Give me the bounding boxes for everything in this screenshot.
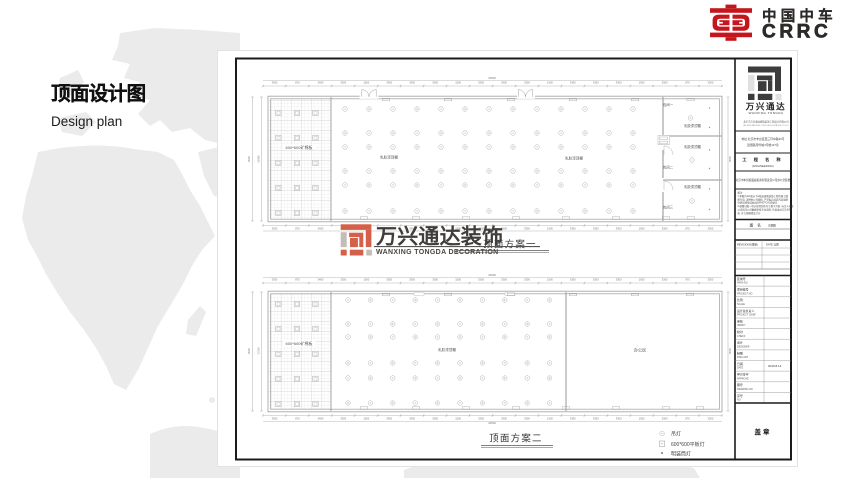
svg-text:地址:北京市丰台区西三环中路90号: 地址:北京市丰台区西三环中路90号 (741, 137, 784, 141)
svg-text:870: 870 (295, 417, 300, 421)
svg-text:9000: 9000 (728, 348, 732, 354)
svg-text:DWG ART: DWG ART (737, 356, 749, 359)
svg-text:校对: 校对 (737, 329, 743, 334)
svg-text:备注:: 备注: (738, 191, 744, 195)
svg-text:办公区: 办公区 (634, 347, 647, 354)
svg-text:3400: 3400 (318, 278, 324, 282)
svg-text:乳胶漆顶棚: 乳胶漆顶棚 (438, 347, 456, 352)
svg-text:3300: 3300 (432, 417, 438, 421)
svg-text:3300: 3300 (501, 81, 507, 85)
svg-text:REVISIONS(图审): REVISIONS(图审) (737, 242, 758, 246)
svg-text:3300: 3300 (570, 417, 576, 421)
svg-text:3300: 3300 (593, 278, 599, 282)
svg-text:1500: 1500 (363, 417, 369, 421)
svg-text:3300: 3300 (593, 417, 599, 421)
svg-text:(ENGINEERING): (ENGINEERING) (752, 164, 774, 168)
svg-text:1500: 1500 (455, 81, 461, 85)
svg-text:870: 870 (685, 81, 690, 85)
svg-text:北京市万兴通达建筑装饰工程设计有限公司: 北京市万兴通达建筑装饰工程设计有限公司 (743, 120, 789, 124)
svg-text:17100: 17100 (257, 347, 261, 355)
svg-text:3300: 3300 (272, 417, 278, 421)
svg-text:870: 870 (685, 227, 690, 231)
svg-text:3400: 3400 (318, 81, 324, 85)
svg-text:DATE: DATE (737, 367, 744, 370)
svg-text:3300: 3300 (570, 81, 576, 85)
svg-text:3300: 3300 (708, 417, 714, 421)
svg-text:1500: 1500 (363, 278, 369, 282)
svg-text:比例: 比例 (737, 297, 743, 302)
svg-text:1500: 1500 (639, 278, 645, 282)
svg-text:3300: 3300 (662, 81, 668, 85)
svg-text:乳胶漆顶棚: 乳胶漆顶棚 (684, 123, 702, 128)
svg-text:3300: 3300 (570, 278, 576, 282)
svg-text:3300: 3300 (340, 81, 346, 85)
svg-text:图号: 图号 (737, 382, 743, 387)
svg-text:9000: 9000 (247, 156, 251, 162)
svg-text:PROJECT CHIEF: PROJECT CHIEF (737, 314, 756, 317)
svg-text:3300: 3300 (662, 417, 668, 421)
svg-text:权, 并立即通知设计方.: 权, 并立即通知设计方. (738, 211, 762, 215)
svg-text:870: 870 (685, 417, 690, 421)
svg-text:3300: 3300 (501, 278, 507, 282)
svg-text:3300: 3300 (524, 278, 530, 282)
svg-text:3300: 3300 (662, 227, 668, 231)
svg-text:设计: 设计 (737, 340, 743, 345)
svg-text:图 名: 图 名 (750, 223, 763, 228)
svg-text:3300: 3300 (432, 81, 438, 85)
svg-text:乳胶漆顶棚: 乳胶漆顶棚 (565, 156, 583, 161)
svg-text:600*600矿棉板: 600*600矿棉板 (286, 144, 313, 150)
svg-text:21450: 21450 (257, 155, 261, 163)
svg-text:3300: 3300 (593, 227, 599, 231)
svg-text:3300: 3300 (616, 227, 622, 231)
svg-text:3300: 3300 (272, 278, 278, 282)
svg-text:包间三: 包间三 (663, 205, 674, 210)
svg-text:AREA NO: AREA NO (737, 282, 748, 285)
svg-text:3300: 3300 (662, 278, 668, 282)
svg-text:2019.8.14: 2019.8.14 (768, 364, 782, 368)
svg-text:万兴通达: 万兴通达 (745, 102, 786, 112)
svg-text:BEI JING WAN XING TONG DA DECO: BEI JING WAN XING TONG DA DECORATION CO.… (743, 124, 789, 127)
svg-text:公司其间公司数据审核专业调电, 有权益对方先声明: 公司其间公司数据审核专业调电, 有权益对方先声明 (738, 208, 793, 212)
svg-text:1500: 1500 (547, 81, 553, 85)
svg-text:甲方签字: 甲方签字 (737, 372, 749, 377)
svg-text:制图: 制图 (737, 350, 743, 355)
svg-text:1500: 1500 (639, 417, 645, 421)
svg-text:NO: NO (737, 399, 741, 402)
svg-text:3300: 3300 (708, 278, 714, 282)
svg-text:3300: 3300 (524, 227, 530, 231)
svg-text:3400: 3400 (318, 417, 324, 421)
svg-text:3300: 3300 (478, 81, 484, 85)
svg-text:包间一: 包间一 (663, 102, 674, 107)
svg-text:外泄用测绘或拍出的PHOTO打印复印.: 外泄用测绘或拍出的PHOTO打印复印. (738, 201, 779, 205)
svg-text:3300: 3300 (593, 81, 599, 85)
svg-text:3300: 3300 (272, 227, 278, 231)
svg-text:3400: 3400 (318, 227, 324, 231)
svg-text:3300: 3300 (409, 278, 415, 282)
svg-text:设计总负责人: 设计总负责人 (737, 308, 754, 313)
svg-text:870: 870 (295, 278, 300, 282)
svg-text:顶棚图: 顶棚图 (768, 224, 776, 228)
svg-text:纸专用, 未经本公司授权, 严禁私自对其内容复制: 纸专用, 未经本公司授权, 严禁私自对其内容复制 (738, 197, 789, 201)
svg-text:万兴通达装饰: 万兴通达装饰 (375, 225, 503, 249)
svg-text:3300: 3300 (501, 417, 507, 421)
svg-text:1500: 1500 (547, 227, 553, 231)
svg-text:3300: 3300 (340, 417, 346, 421)
svg-text:44500: 44500 (488, 76, 496, 80)
svg-text:SCALE: SCALE (737, 303, 745, 306)
svg-text:乳胶漆顶棚: 乳胶漆顶棚 (380, 155, 398, 160)
svg-text:1500: 1500 (639, 227, 645, 231)
svg-text:VERIFY: VERIFY (737, 324, 746, 327)
svg-text:WANXING TONGDA: WANXING TONGDA (749, 111, 784, 115)
svg-text:工 程 名 称: 工 程 名 称 (742, 156, 783, 163)
svg-text:序号: 序号 (737, 393, 743, 398)
svg-text:3300: 3300 (386, 417, 392, 421)
svg-text:1500: 1500 (455, 278, 461, 282)
svg-text:3300: 3300 (616, 81, 622, 85)
svg-text:1500: 1500 (455, 417, 461, 421)
svg-text:WANXING TONGDA DECORATION: WANXING TONGDA DECORATION (376, 249, 499, 256)
svg-text:9000: 9000 (728, 156, 732, 162)
svg-text:顶面设计图: 顶面设计图 (51, 82, 146, 105)
svg-text:1500: 1500 (547, 417, 553, 421)
svg-text:3300: 3300 (570, 227, 576, 231)
svg-text:870: 870 (685, 278, 690, 282)
svg-text:3300: 3300 (386, 81, 392, 85)
svg-text:建国路现代城4号楼107室: 建国路现代城4号楼107室 (747, 143, 779, 147)
svg-text:PROJECT NO: PROJECT NO (737, 292, 753, 295)
svg-text:3300: 3300 (524, 81, 530, 85)
svg-text:乳胶漆顶棚: 乳胶漆顶棚 (684, 144, 702, 149)
svg-text:乳胶漆顶棚: 乳胶漆顶棚 (684, 184, 702, 189)
svg-text:CRRC: CRRC (762, 22, 831, 43)
svg-text:3300: 3300 (386, 278, 392, 282)
svg-text:DRAWING NO: DRAWING NO (737, 388, 753, 391)
svg-text:DATE 日期: DATE 日期 (766, 242, 779, 246)
svg-text:3300: 3300 (478, 278, 484, 282)
svg-text:9000: 9000 (247, 348, 251, 354)
svg-text:审核: 审核 (737, 318, 743, 323)
svg-text:600*600矿棉板: 600*600矿棉板 (286, 340, 313, 346)
svg-text:3300: 3300 (340, 278, 346, 282)
svg-text:1500: 1500 (639, 81, 645, 85)
svg-text:包间二: 包间二 (663, 165, 674, 170)
svg-text:44500: 44500 (488, 273, 496, 277)
svg-text:3300: 3300 (616, 417, 622, 421)
svg-text:3300: 3300 (524, 417, 530, 421)
svg-text:1500: 1500 (363, 81, 369, 85)
svg-text:870: 870 (295, 81, 300, 85)
svg-text:3300: 3300 (409, 81, 415, 85)
svg-text:顶面方案二: 顶面方案二 (489, 433, 543, 445)
svg-text:600*600平板灯: 600*600平板灯 (671, 441, 705, 448)
svg-text:日期: 日期 (737, 361, 743, 366)
svg-text:3300: 3300 (478, 417, 484, 421)
svg-text:APPROVE: APPROVE (737, 377, 749, 380)
svg-text:盖章: 盖章 (755, 427, 772, 436)
svg-text:3300: 3300 (272, 81, 278, 85)
svg-text:吊灯: 吊灯 (671, 431, 681, 438)
svg-text:1500: 1500 (547, 278, 553, 282)
svg-text:870: 870 (295, 227, 300, 231)
svg-text:Design plan: Design plan (51, 114, 122, 129)
svg-text:明装筒灯: 明装筒灯 (671, 451, 691, 458)
svg-text:3300: 3300 (616, 278, 622, 282)
svg-text:3300: 3300 (432, 278, 438, 282)
svg-text:3300: 3300 (409, 417, 415, 421)
svg-text:3300: 3300 (708, 81, 714, 85)
svg-text:区域号: 区域号 (737, 276, 746, 281)
svg-text:3300: 3300 (708, 227, 714, 231)
svg-text:2.展署记图一切以现场实际尺寸数字为准, 标注人对该: 2.展署记图一切以现场实际尺寸数字为准, 标注人对该 (738, 204, 795, 208)
svg-text:北京中车创投股权投资有限责任公司办公室装修: 北京中车创投股权投资有限责任公司办公室装修 (736, 178, 791, 182)
svg-text:项目编号: 项目编号 (737, 287, 749, 292)
svg-text:DESIGNER: DESIGNER (737, 345, 750, 348)
svg-text:1.本图为110及以下м般远建筑装饰工程的施工图: 1.本图为110及以下м般远建筑装饰工程的施工图 (738, 194, 789, 198)
svg-text:CHECK: CHECK (737, 335, 746, 338)
